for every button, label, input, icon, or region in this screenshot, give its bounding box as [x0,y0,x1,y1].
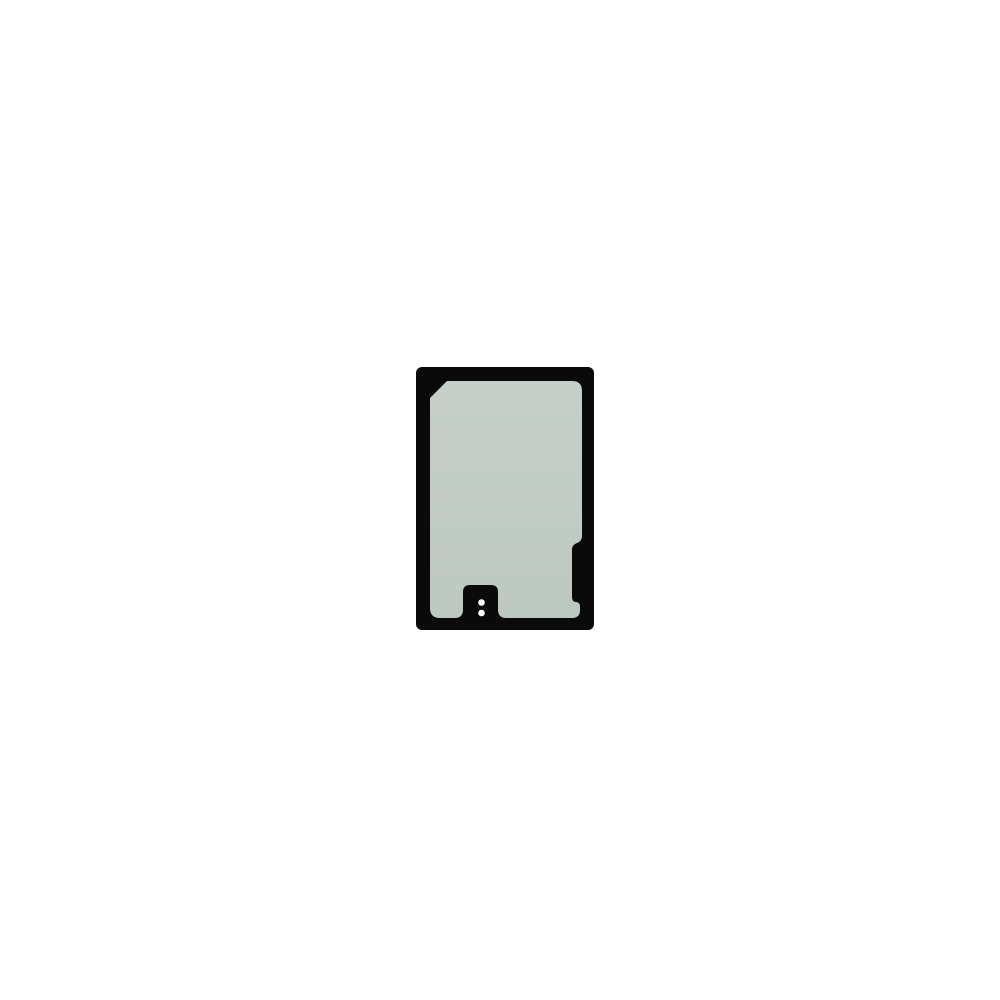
alignment-dot-lower [478,610,485,617]
sticker-liner [430,381,582,618]
product-photo [0,0,1000,1000]
alignment-dot-upper [478,599,485,606]
adhesive-sticker-illustration [0,0,1000,1000]
page-background: { "page": { "background_color": "#ffffff… [0,0,1000,1000]
